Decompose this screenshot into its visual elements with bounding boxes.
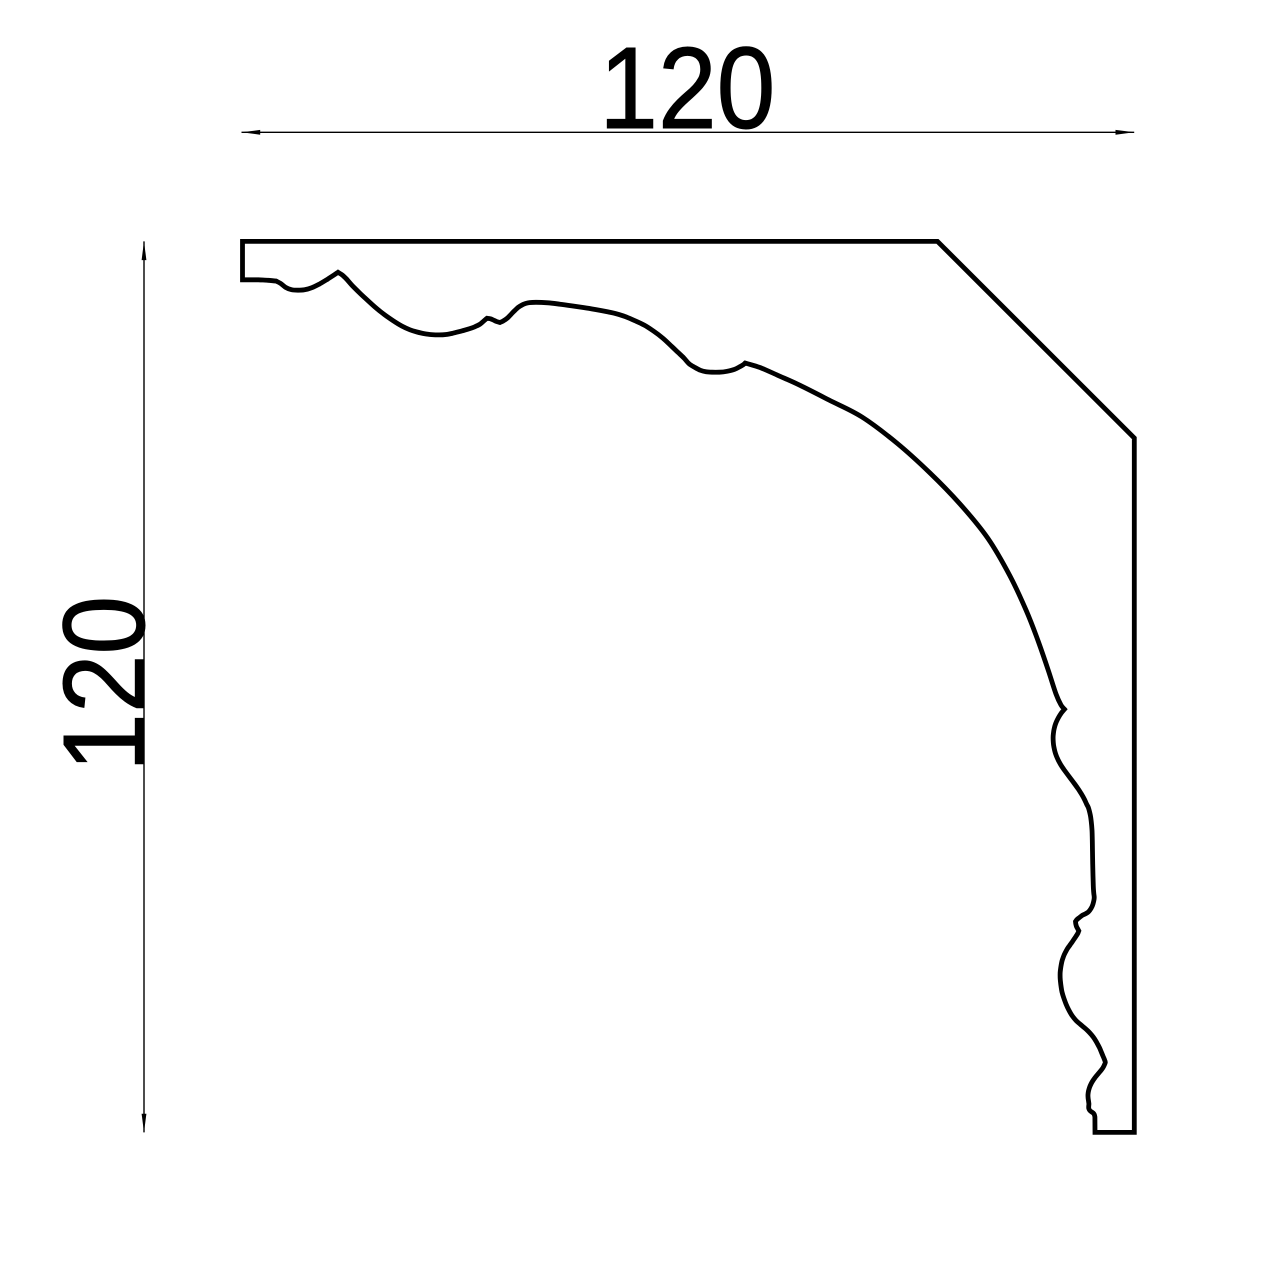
- svg-text:120: 120: [599, 23, 775, 153]
- svg-text:120: 120: [39, 596, 169, 772]
